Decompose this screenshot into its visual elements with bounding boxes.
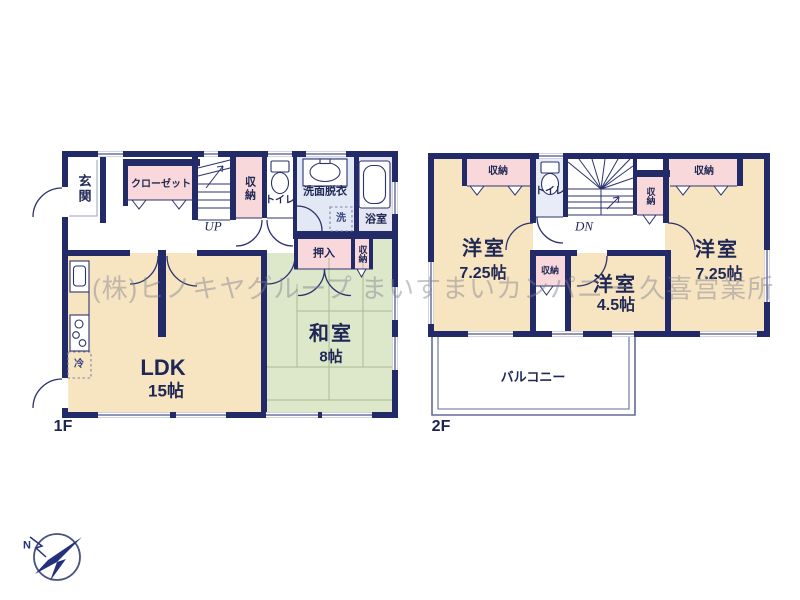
toilet-icon-1f — [271, 161, 289, 194]
oshiire-label: 押入 — [313, 249, 335, 260]
floor1-label: 1F — [54, 419, 73, 435]
bathtub-icon — [359, 161, 390, 208]
closet-label: クローゼット — [131, 180, 191, 190]
hall-gap — [637, 159, 663, 170]
stairs-up-label: UP — [204, 220, 221, 233]
stairs-down-label: DN — [575, 220, 593, 233]
washitsu-size-label: 8帖 — [319, 350, 342, 365]
ldk-size-label: 15帖 — [148, 383, 184, 400]
storage-left-label: 収納 — [488, 167, 508, 177]
balcony-label: バルコニー — [501, 371, 566, 384]
compass-north-label: N — [23, 541, 31, 552]
storage-mid-label: 収納 — [646, 187, 655, 205]
toilet-2f-label: トイレ — [535, 187, 565, 197]
genkan-label: 玄関 — [78, 174, 91, 204]
storage-right-label: 収納 — [694, 167, 714, 177]
storage-washitsu-label: 収納 — [358, 245, 367, 263]
bathroom-label: 浴室 — [365, 215, 387, 226]
washbasin-icon — [303, 159, 347, 186]
stove-icon — [70, 315, 89, 351]
washitsu-name-label: 和室 — [309, 324, 353, 344]
toilet-1f-label: トイレ — [265, 196, 295, 206]
storage-hall-label: 収納 — [244, 176, 255, 202]
compass-icon — [30, 534, 82, 581]
washer-label: 洗 — [336, 214, 346, 224]
watermark-text: (株)ヒノキヤグループ まいすまいカンパニー 久喜営業所 — [92, 269, 774, 306]
stairs-1f — [198, 160, 230, 208]
floor-plan-page: 玄関 クローゼット UP 収納 トイレ 洗面脱衣 洗 浴室 押入 収納 和室 8… — [0, 0, 800, 600]
floor2-label: 2F — [432, 419, 451, 435]
bedroom-right-name-label: 洋室 — [695, 240, 739, 260]
ldk-name-label: LDK — [140, 357, 185, 379]
fridge-label: 冷 — [74, 360, 84, 370]
hall-2f — [536, 217, 665, 250]
washroom-label: 洗面脱衣 — [303, 187, 347, 198]
washitsu-room-ext — [373, 239, 392, 255]
bedroom-left-name-label: 洋室 — [462, 239, 506, 259]
